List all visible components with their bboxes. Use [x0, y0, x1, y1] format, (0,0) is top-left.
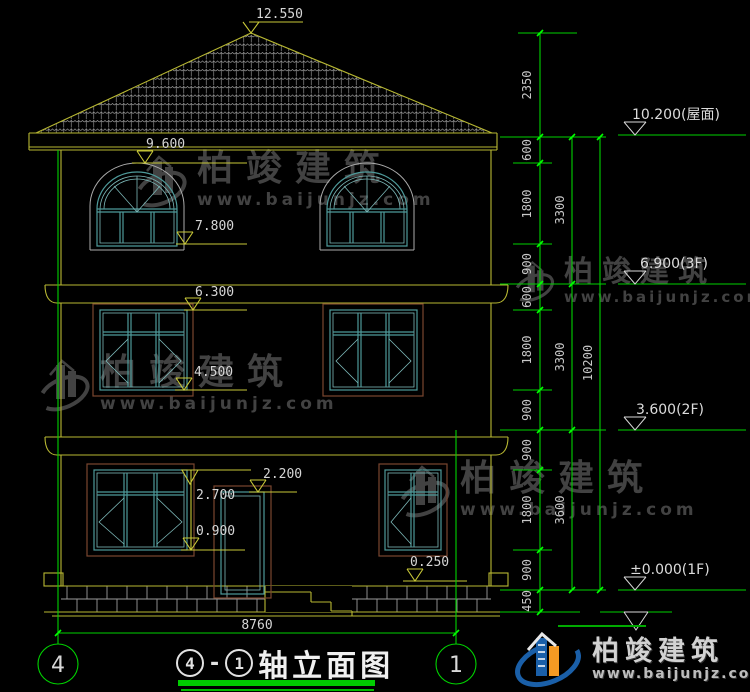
- eave-fascia: [29, 133, 497, 150]
- level-label-2f: 3.600(2F): [636, 402, 704, 418]
- dim-chain-b-2: 3600: [553, 496, 567, 525]
- cornice-band-1f2f: [45, 437, 508, 455]
- cad-elevation-drawing: 柏竣建筑 www.baijunjz.com 柏竣建筑 www.baijunjz.…: [0, 0, 750, 692]
- title-axis-start: 4: [176, 649, 204, 677]
- window-3f-right: [320, 163, 414, 250]
- brand-footer: 柏竣建筑 www.baijunjz.com: [508, 628, 750, 692]
- title-separator: -: [210, 651, 219, 676]
- window-3f-left: [90, 163, 184, 250]
- brand-logo-icon: [508, 628, 588, 692]
- level-label-w3-sill: 7.800: [195, 219, 234, 234]
- dim-chain-a-7: 900: [520, 439, 534, 461]
- dim-chain-a-0: 2350: [520, 71, 534, 100]
- roof-tile-area: [36, 33, 492, 133]
- window-1f-left: [87, 464, 194, 556]
- level-label-w1-sill: 0.900: [196, 524, 235, 539]
- elevation-linework: 12.550 9.600 7.800 6.300 4.500 2.700 0.9…: [0, 0, 750, 692]
- plinth: [44, 573, 508, 616]
- title-axis-end: 1: [225, 649, 253, 677]
- brand-rule: [558, 625, 646, 627]
- drawing-title: 4 - 1 轴立面图: [176, 641, 394, 685]
- axis-number-right: 1: [449, 653, 463, 678]
- title-underline: [178, 680, 375, 686]
- title-text: 轴立面图: [258, 641, 394, 685]
- level-label-3f: 6.900(3F): [640, 256, 708, 272]
- wall-outlines: [61, 150, 491, 586]
- dim-chain-a-10: 450: [520, 590, 534, 612]
- dim-chain-a-2: 1800: [520, 190, 534, 219]
- dim-chain-a-5: 1800: [520, 336, 534, 365]
- axis-number-left: 4: [51, 653, 65, 678]
- level-label-w1-head: 2.700: [196, 488, 235, 503]
- level-label-w3-head: 9.600: [146, 137, 185, 152]
- dim-overall-width: 8760: [241, 618, 272, 633]
- level-label-w2-sill: 4.500: [194, 365, 233, 380]
- dim-chain-b-0: 3300: [553, 196, 567, 225]
- right-dimension-chains: 2350 600 1800 900 600 1800 900 900 1800 …: [500, 30, 606, 615]
- window-2f-left: [93, 304, 193, 396]
- brand-name: 柏竣建筑: [592, 638, 750, 666]
- roof: [29, 33, 497, 150]
- level-label-roof: 10.200(屋面): [632, 107, 720, 123]
- title-underline-thin: [181, 689, 374, 691]
- dim-total-height: 10200: [581, 345, 595, 381]
- level-label-porch: 0.250: [410, 555, 449, 570]
- level-label-1f: ±0.000(1F): [630, 562, 710, 578]
- left-plinth-ledge: [44, 573, 63, 586]
- brand-url: www.baijunjz.com: [592, 666, 750, 682]
- cornice-band-2f3f: [45, 285, 508, 303]
- dim-chain-b-1: 3300: [553, 343, 567, 372]
- dim-chain-a-8: 1800: [520, 496, 534, 525]
- dim-chain-a-9: 900: [520, 559, 534, 581]
- level-label-door-head: 2.200: [263, 467, 302, 482]
- dim-chain-a-1: 600: [520, 139, 534, 161]
- window-2f-right: [323, 304, 423, 396]
- steps-mask: [265, 586, 352, 612]
- dim-chain-a-6: 900: [520, 399, 534, 421]
- right-level-markers: 10.200(屋面) 6.900(3F) 3.600(2F) ±0.000(1F…: [600, 107, 746, 630]
- window-1f-right: [379, 464, 447, 556]
- level-label-w2-head: 6.300: [195, 285, 234, 300]
- right-plinth-ledge: [489, 573, 508, 586]
- dim-chain-a-3: 900: [520, 253, 534, 275]
- dim-chain-a-4: 600: [520, 286, 534, 308]
- level-label-ridge: 12.550: [256, 7, 303, 22]
